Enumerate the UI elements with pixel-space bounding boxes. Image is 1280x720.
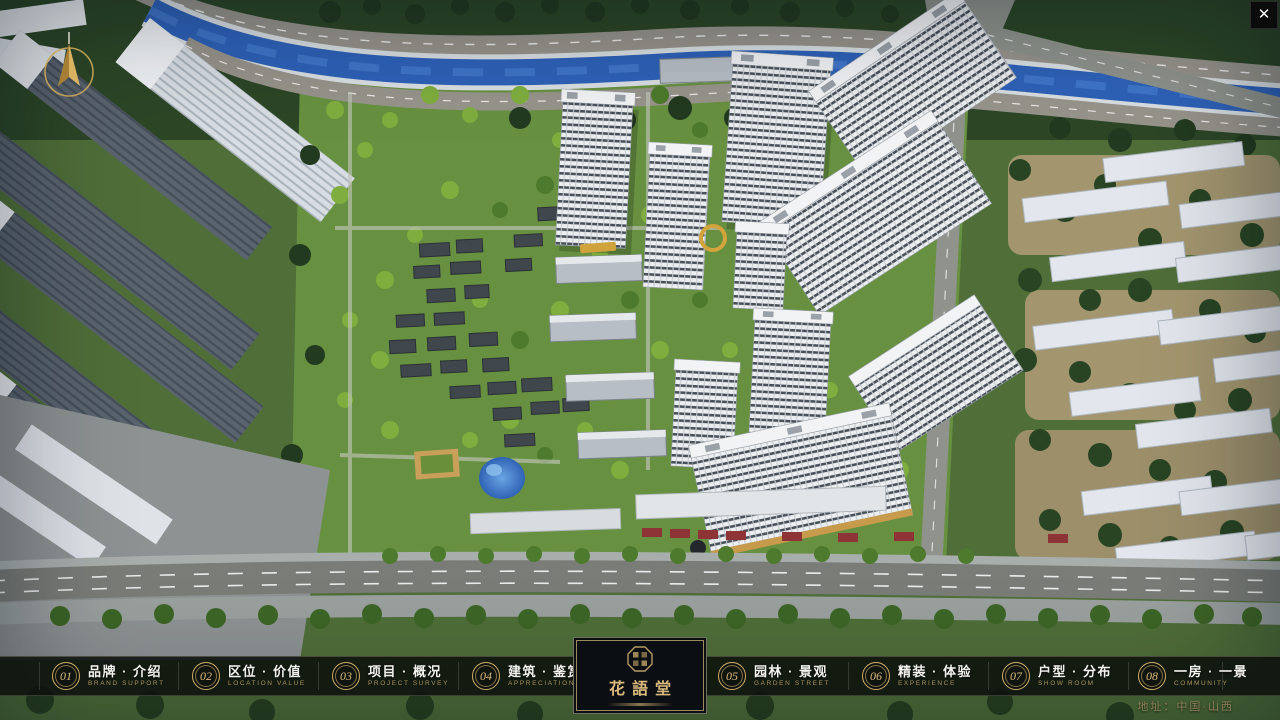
nav-number: 08 (1146, 669, 1158, 684)
project-address: 地址：中国·山西 (1137, 698, 1234, 714)
nav-sublabel: APPRECIATION (508, 681, 582, 688)
nav-badge: 05 (718, 662, 746, 690)
nav-number: 02 (200, 669, 212, 684)
nav-number: 05 (726, 669, 738, 684)
nav-badge: 06 (862, 662, 890, 690)
nav-badge: 01 (52, 662, 80, 690)
aerial-masterplan-render (0, 0, 1280, 720)
nav-label: 户型 · 分布 (1038, 665, 1112, 678)
project-logo-panel: 花語堂 (573, 637, 707, 714)
nav-label: 品牌 · 介绍 (88, 665, 165, 678)
nav-item-garden-landscape[interactable]: 05 园林 · 景观 GARDEN STREET (718, 657, 856, 695)
nav-label: 精装 · 体验 (898, 665, 972, 678)
nav-sublabel: LOCATION VALUE (228, 681, 306, 688)
nav-sublabel: BRAND SUPPORT (88, 681, 165, 688)
nav-badge: 08 (1138, 662, 1166, 690)
swimming-pool (479, 457, 525, 499)
nav-item-interior-experience[interactable]: 06 精装 · 体验 EXPERIENCE (862, 657, 1000, 695)
nav-label: 建筑 · 鉴赏 (508, 665, 582, 678)
nav-sublabel: SHOW ROOM (1038, 681, 1112, 688)
seal-emblem-icon (626, 645, 654, 673)
nav-sublabel: EXPERIENCE (898, 681, 972, 688)
nav-badge: 02 (192, 662, 220, 690)
nav-item-location-value[interactable]: 02 区位 · 价值 LOCATION VALUE (192, 657, 330, 695)
presentation-screen: ✕ 01 品牌 · 介绍 BRAND SUPPORT 02 区位 · 价值 LO… (0, 0, 1280, 720)
nav-label: 区位 · 价值 (228, 665, 306, 678)
nav-item-project-survey[interactable]: 03 项目 · 概况 PROJECT SURVEY (332, 657, 470, 695)
east-lowrise-district (1008, 134, 1280, 583)
nav-label: 一房 · 一景 (1174, 665, 1248, 678)
nav-sublabel: COMMUNITY (1174, 681, 1248, 688)
nav-number: 03 (340, 669, 352, 684)
nav-divider (39, 662, 40, 690)
compass-icon (38, 30, 100, 106)
nav-label: 项目 · 概况 (368, 665, 449, 678)
close-button[interactable]: ✕ (1250, 1, 1278, 29)
nav-sublabel: PROJECT SURVEY (368, 681, 449, 688)
nav-number: 04 (480, 669, 492, 684)
logo-subtext-line (607, 703, 673, 706)
nav-number: 06 (870, 669, 882, 684)
nav-item-room-view[interactable]: 08 一房 · 一景 COMMUNITY (1138, 657, 1276, 695)
nav-badge: 03 (332, 662, 360, 690)
nav-item-brand-intro[interactable]: 01 品牌 · 介绍 BRAND SUPPORT (52, 657, 190, 695)
nav-label: 园林 · 景观 (754, 665, 830, 678)
nav-badge: 07 (1002, 662, 1030, 690)
nav-badge: 04 (472, 662, 500, 690)
nav-number: 01 (60, 669, 72, 684)
nav-number: 07 (1010, 669, 1022, 684)
nav-sublabel: GARDEN STREET (754, 681, 830, 688)
nav-item-floorplan-distribution[interactable]: 07 户型 · 分布 SHOW ROOM (1002, 657, 1140, 695)
close-icon: ✕ (1258, 6, 1271, 23)
project-name: 花語堂 (602, 675, 678, 699)
